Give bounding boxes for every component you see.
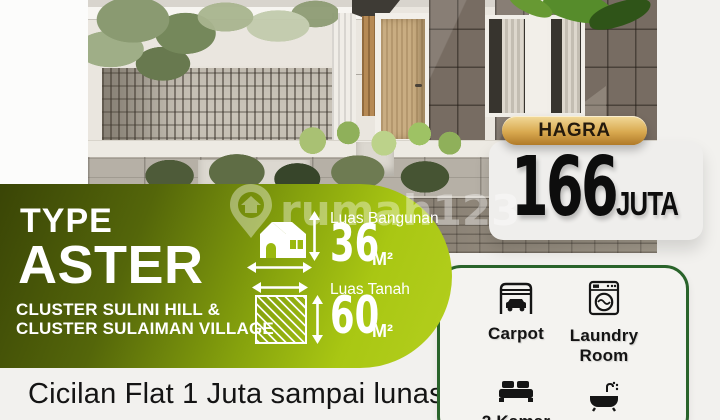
window-right xyxy=(547,15,585,117)
garage-icon xyxy=(498,280,534,314)
rumah123-pin-icon xyxy=(228,183,274,239)
width-arrow-icon xyxy=(252,281,308,294)
amenity-label: 2 Kamar xyxy=(470,412,562,420)
cluster-line-1: CLUSTER SULINI HILL & xyxy=(16,300,220,320)
price-amount: 166 xyxy=(511,147,616,229)
height-arrow-icon xyxy=(311,295,324,344)
price-card: 166 JUTA xyxy=(489,141,703,240)
spec-value: 60 M² xyxy=(330,296,410,338)
land-plot-icon xyxy=(255,295,307,344)
spec-unit: M² xyxy=(372,321,393,342)
cluster-line-2: CLUSTER SULAIMAN VILLAGE xyxy=(16,319,274,339)
curtain xyxy=(562,19,580,113)
price-unit: JUTA xyxy=(616,185,678,223)
amenity-bathroom: 1 Kamar xyxy=(558,380,650,420)
installment-note: Cicilan Flat 1 Juta sampai lunas xyxy=(28,378,444,411)
watermark-text: rumah123 xyxy=(280,183,520,239)
developer-badge: HAGRA xyxy=(502,116,647,145)
watermark: rumah123 xyxy=(228,183,520,239)
developer-badge-label: HAGRA xyxy=(538,120,610,142)
amenity-bedroom: 2 Kamar xyxy=(470,380,562,420)
type-name: ASTER xyxy=(18,238,204,292)
door-handle xyxy=(415,84,422,87)
width-arrow-icon xyxy=(247,261,312,274)
bed-icon xyxy=(497,380,535,402)
amenity-label: Carpot xyxy=(470,324,562,344)
curtain xyxy=(502,19,524,113)
window-left xyxy=(485,15,529,117)
amenities-panel: Carpot Laundry Room 2 K xyxy=(437,265,689,420)
bathtub-icon xyxy=(587,380,621,412)
left-margin xyxy=(0,0,88,186)
amenity-carport: Carpot xyxy=(470,280,562,344)
spec-unit: M² xyxy=(372,249,393,270)
amenity-laundry-room: Laundry Room xyxy=(558,280,650,366)
amenity-label: Laundry Room xyxy=(558,326,650,366)
property-flyer: 166 JUTA HAGRA TYPE ASTER CLUSTER SULINI… xyxy=(0,0,720,420)
washing-machine-icon xyxy=(588,280,620,316)
vine-foliage xyxy=(188,0,338,56)
